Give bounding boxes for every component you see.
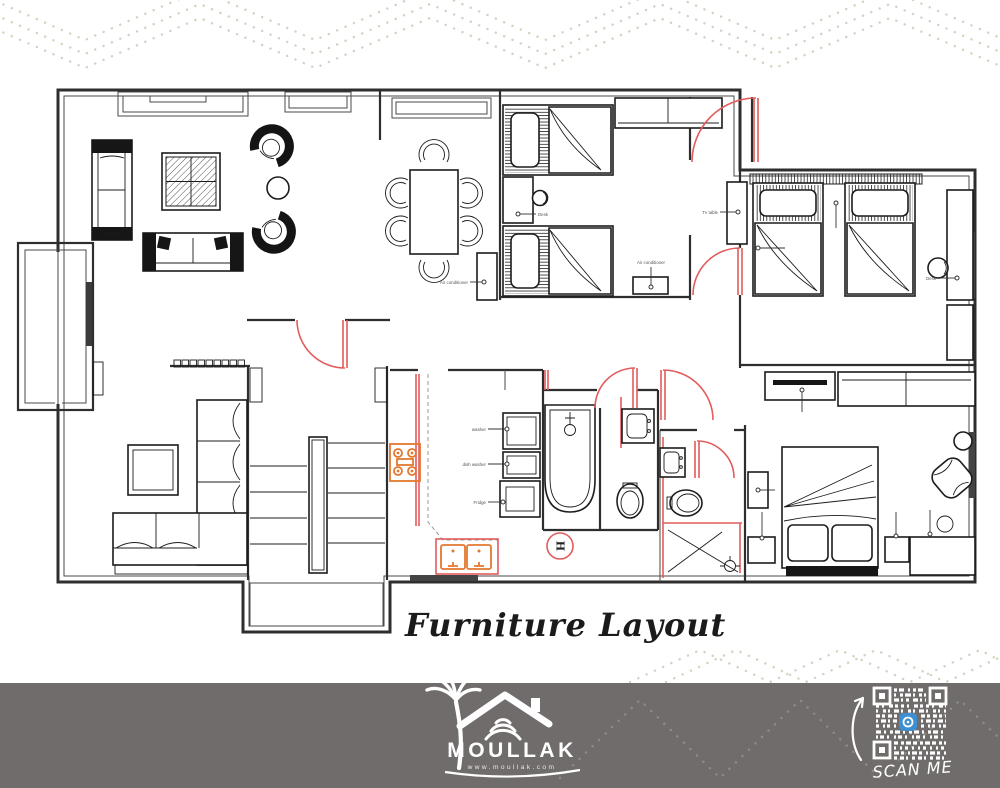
sofa-horizontal (143, 233, 243, 271)
heater-symbol: H (547, 533, 573, 559)
chevron-pattern-top (0, 0, 1000, 68)
shower (668, 530, 740, 572)
dining-area: Air conditioner (386, 140, 497, 300)
coffee-table (162, 153, 220, 210)
dining-table (410, 170, 458, 254)
toilet (617, 483, 643, 518)
bed (503, 105, 613, 175)
armchair (251, 122, 296, 165)
svg-text:Air conditioner: Air conditioner (440, 280, 469, 285)
kitchen: washer dish washer Fridge (390, 374, 540, 574)
svg-text:H: H (554, 541, 567, 551)
bathtub (545, 405, 595, 512)
svg-text:washer: washer (472, 427, 487, 432)
master-bedroom (748, 372, 976, 576)
floor-plan: Air conditioner (18, 90, 976, 644)
bed (753, 183, 823, 296)
stair-landing (250, 583, 383, 626)
living-room (92, 122, 298, 271)
dining-chair (419, 140, 449, 162)
svg-text:Fridge: Fridge (474, 500, 487, 505)
bedroom-2: Tv table Desk (702, 174, 973, 360)
desk: Desk (926, 190, 973, 360)
dining-chair (386, 216, 408, 246)
page-title: Furniture Layout (404, 606, 726, 644)
decor-circle (937, 516, 953, 532)
svg-text:Air conditioner: Air conditioner (637, 260, 666, 265)
svg-text:Tv table: Tv table (702, 210, 718, 215)
dining-chair (460, 216, 482, 246)
svg-text:Desk: Desk (926, 276, 937, 281)
bed (845, 183, 915, 296)
armchair (253, 213, 298, 256)
brand-name: MOULLAK (447, 739, 576, 762)
stool (954, 432, 972, 450)
washer: washer (472, 413, 540, 449)
square-table (128, 445, 178, 495)
side-table (267, 177, 289, 199)
double-bed (782, 447, 878, 576)
footer: MOULLAK www.moullak.com (0, 669, 1000, 788)
chevron-pattern-bottom (630, 650, 1000, 682)
family-room (113, 360, 248, 574)
svg-text:dish washer: dish washer (463, 462, 487, 467)
dish-washer: dish washer (463, 452, 540, 478)
window-strip (410, 575, 478, 581)
closet (615, 98, 722, 128)
washbasin (660, 448, 685, 477)
svg-text:Desk: Desk (538, 212, 549, 217)
wardrobe (838, 372, 975, 406)
balcony (18, 243, 103, 410)
air-conditioner: Air conditioner (440, 253, 497, 300)
kitchen-sink (436, 539, 498, 574)
bed (503, 226, 613, 296)
toilet (667, 490, 702, 516)
brand-website: www.moullak.com (467, 764, 557, 771)
wc-shower (660, 437, 742, 578)
tv-table: Tv table (702, 182, 747, 244)
sofa-vertical (92, 140, 132, 240)
fridge: Fridge (474, 481, 540, 517)
washbasin (622, 409, 654, 443)
stairs (250, 437, 385, 626)
air-conditioner: Air conditioner (633, 260, 668, 294)
poster-canvas: Air conditioner (0, 0, 1000, 788)
furniture-layout-drawing: Air conditioner (0, 0, 1000, 788)
dining-chair (460, 178, 482, 208)
qr-center-icon (899, 713, 917, 731)
dining-chair (386, 178, 408, 208)
tv-console (765, 372, 835, 412)
